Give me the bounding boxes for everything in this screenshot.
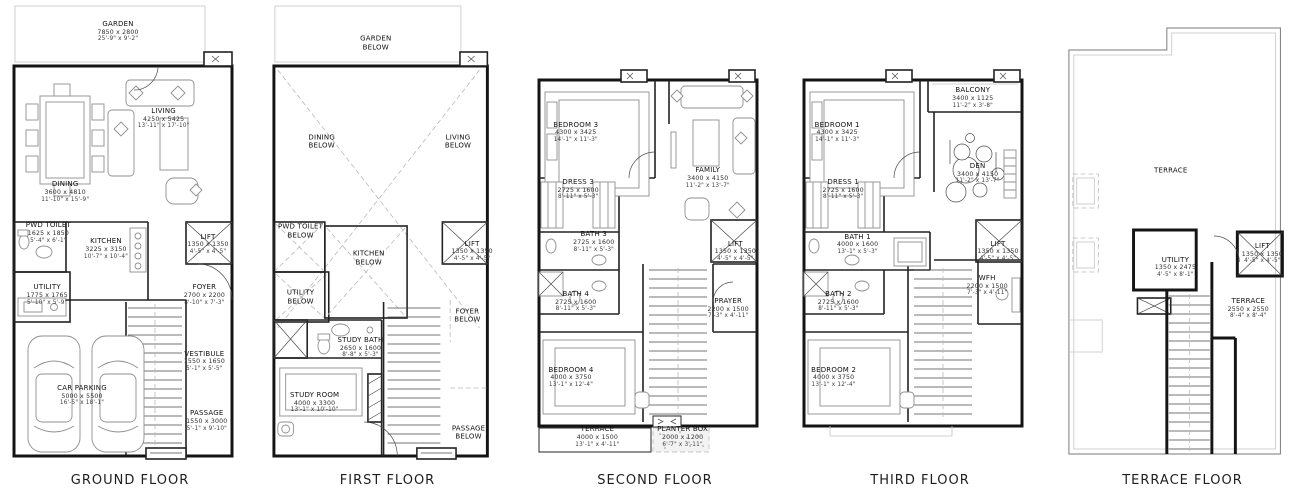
first-floor-room-labels: GARDENBELOWDININGBELOWLIVINGBELOWPWD TOI… [270,2,505,460]
room-label-dress-1: DRESS 12725 x 16008'-11" x 5'-3" [823,178,864,202]
room-label-terrace: TERRACE2550 x 25508'-4" x 8'-4" [1228,297,1269,321]
room-label-pwd-toilet: PWD TOILET1625 x 18505'-4" x 6'-1" [26,221,71,245]
room-label-kitchen: KITCHEN3225 x 315010'-7" x 10'-4" [84,238,128,262]
terrace-floor-plan: TERRACEUTILITY1350 x 24754'-5" x 8'-1"LI… [1065,0,1300,500]
room-label-lift: LIFT1350 x 13504'-5" x 4'-5" [715,240,756,264]
room-label-planter-box: PLANTER BOX2000 x 12006'-7" x 3'-11" [657,425,708,449]
terrace-floor-canvas: TERRACEUTILITY1350 x 24754'-5" x 8'-1"LI… [1065,2,1300,460]
room-label-garden: GARDEN7850 x 280025'-9" x 9'-2" [97,20,138,44]
room-label-lift: LIFT1350 x 13504'-5" x 4'-5" [451,240,492,264]
room-label-den: DEN3400 x 415011'-2" x 13'-7" [956,162,1000,186]
second-floor-plan: BEDROOM 34300 x 342514'-1" x 11'-3"FAMIL… [535,0,775,500]
third-floor-plan: BEDROOM 14300 x 342514'-1" x 11'-3"BALCO… [800,0,1040,500]
room-label-bedroom-1: BEDROOM 14300 x 342514'-1" x 11'-3" [815,121,860,145]
room-label-dress-3: DRESS 32725 x 16008'-11" x 5'-3" [558,178,599,202]
room-label-utility: UTILITY1350 x 24754'-5" x 8'-1" [1155,256,1196,280]
room-label-lift: LIFT1350 x 13504'-5" x 4'-5" [187,233,228,257]
floor-title-third: THIRD FLOOR [800,473,1040,488]
room-label-bath-1: BATH 14000 x 160013'-1" x 5'-3" [837,233,878,257]
room-label-dining: DININGBELOW [308,133,335,151]
floor-title-terrace: TERRACE FLOOR [1065,473,1300,488]
room-label-garden: GARDENBELOW [360,34,391,52]
room-label-vestibule: VESTIBULE1550 x 16505'-1" x 5'-5" [184,350,225,374]
room-label-study-room: STUDY ROOM4000 x 330013'-1" x 10'-10" [290,391,339,415]
first-floor-canvas: GARDENBELOWDININGBELOWLIVINGBELOWPWD TOI… [270,2,505,460]
terrace-floor-room-labels: TERRACEUTILITY1350 x 24754'-5" x 8'-1"LI… [1065,2,1300,460]
room-label-bath-3: BATH 32725 x 16008'-11" x 5'-3" [573,231,614,255]
ground-floor-canvas: GARDEN7850 x 280025'-9" x 9'-2"LIVING425… [10,2,250,460]
room-label-lift: LIFT1350 x 13504'-5" x 4'-5" [977,240,1018,264]
third-floor-room-labels: BEDROOM 14300 x 342514'-1" x 11'-3"BALCO… [800,2,1040,460]
room-label-balcony: BALCONY3400 x 112511'-2" x 3'-8" [952,86,993,110]
room-label-bath-2: BATH 22725 x 16008'-11" x 5'-3" [818,290,859,314]
third-floor-canvas: BEDROOM 14300 x 342514'-1" x 11'-3"BALCO… [800,2,1040,460]
room-label-kitchen: KITCHENBELOW [353,250,385,268]
room-label-utility: UTILITYBELOW [287,289,314,307]
room-label-foyer: FOYER2700 x 22008'-10" x 7'-3" [184,283,225,307]
floor-title-ground: GROUND FLOOR [10,473,250,488]
room-label-passage: PASSAGEBELOW [452,424,486,442]
room-label-lift: LIFT1350 x 13504'-5" x 4'-5" [1242,242,1283,266]
ground-floor-plan: GARDEN7850 x 280025'-9" x 9'-2"LIVING425… [10,0,250,500]
room-label-bedroom-2: BEDROOM 24000 x 375013'-1" x 12'-4" [811,366,856,390]
room-label-pwd-toilet: PWD TOILETBELOW [278,222,323,240]
room-label-car-parking: CAR PARKING5000 x 550016'-5" x 18'-1" [57,384,107,408]
room-label-living: LIVING4250 x 542513'-11" x 17'-10" [138,107,190,131]
room-label-dining: DINING3600 x 481011'-10" x 15'-9" [41,180,89,204]
room-label-bedroom-4: BEDROOM 44000 x 375013'-1" x 12'-4" [548,366,593,390]
room-label-family: FAMILY3400 x 415011'-2" x 13'-7" [686,167,730,191]
first-floor-plan: GARDENBELOWDININGBELOWLIVINGBELOWPWD TOI… [270,0,505,500]
second-floor-room-labels: BEDROOM 34300 x 342514'-1" x 11'-3"FAMIL… [535,2,775,460]
floor-title-first: FIRST FLOOR [270,473,505,488]
floor-title-second: SECOND FLOOR [535,473,775,488]
room-label-terrace: TERRACE4000 x 150013'-1" x 4'-11" [575,425,619,449]
room-label-study-bath: STUDY BATH2650 x 16008'-8" x 5'-3" [337,336,383,360]
room-label-living: LIVINGBELOW [445,133,471,151]
floor-plan-sheet: GARDEN7850 x 280025'-9" x 9'-2"LIVING425… [0,0,1300,500]
room-label-passage: PASSAGE1550 x 30005'-1" x 9'-10" [186,409,227,433]
room-label-terrace: TERRACE [1154,167,1188,176]
room-label-prayer: PRAYER2200 x 15007'-3" x 4'-11" [708,297,749,321]
ground-floor-room-labels: GARDEN7850 x 280025'-9" x 9'-2"LIVING425… [10,2,250,460]
room-label-utility: UTILITY1775 x 17655'-10" x 5'-9" [27,283,68,307]
room-label-wfh: WFH2200 x 15007'-3" x 4'-11" [967,274,1008,298]
room-label-bedroom-3: BEDROOM 34300 x 342514'-1" x 11'-3" [553,121,598,145]
second-floor-canvas: BEDROOM 34300 x 342514'-1" x 11'-3"FAMIL… [535,2,775,460]
room-label-bath-4: BATH 42725 x 16008'-11" x 5'-3" [555,290,596,314]
room-label-foyer: FOYERBELOW [454,307,480,325]
